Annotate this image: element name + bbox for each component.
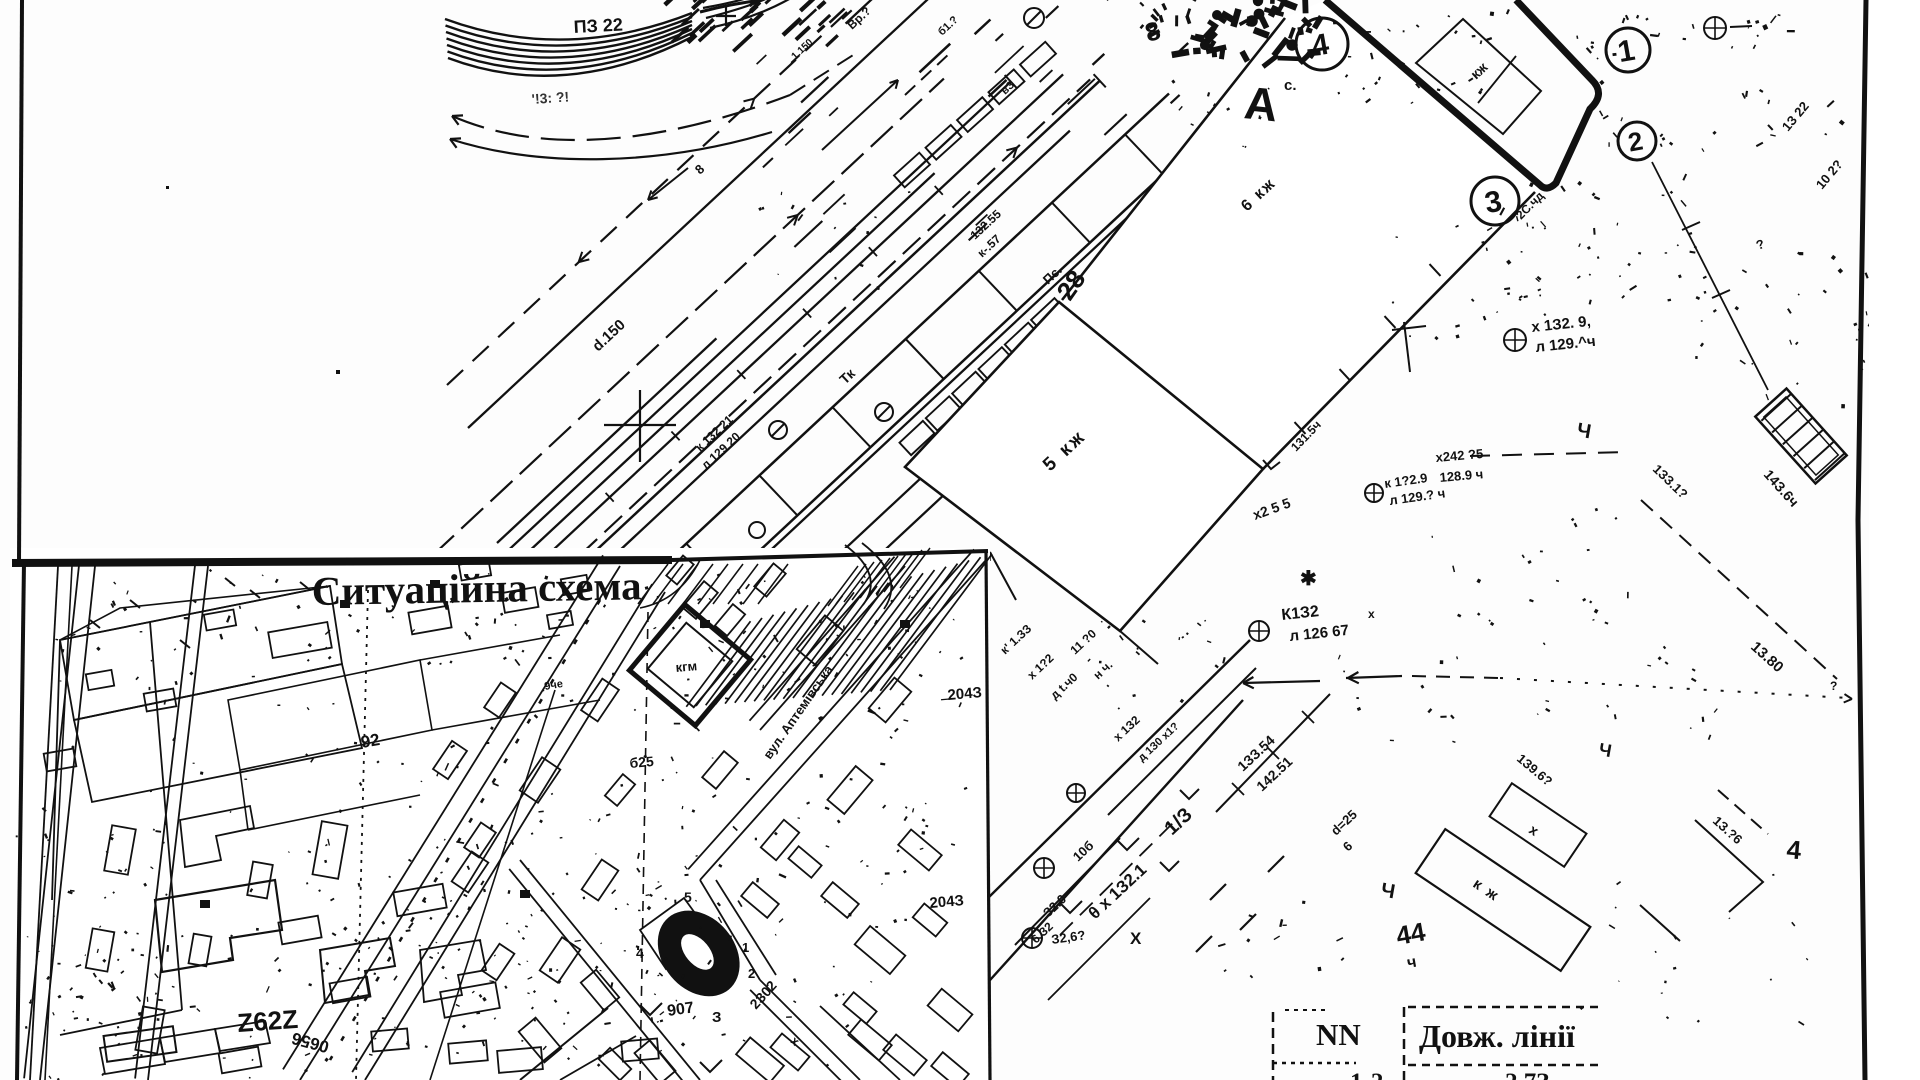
svg-text:1-2: 1-2 (1350, 1069, 1383, 1080)
svg-text:кгм: кгм (675, 658, 698, 675)
svg-text:б25: б25 (629, 753, 655, 771)
svg-text:Z62Z: Z62Z (236, 1004, 299, 1038)
svg-text:ПЗ 22: ПЗ 22 (573, 14, 623, 37)
svg-text:х: х (1368, 607, 1375, 621)
svg-text:А: А (1242, 76, 1280, 131)
svg-text:З: З (712, 1009, 721, 1026)
svg-text:?: ? (1830, 679, 1837, 693)
svg-text:Ситуаційна схема: Ситуаційна схема (311, 562, 642, 614)
svg-text:1: 1 (742, 940, 749, 955)
svg-text:2.7З: 2.7З (1505, 1069, 1549, 1080)
svg-text:'!3: ?!: '!3: ?! (531, 88, 570, 107)
svg-text:44: 44 (1394, 916, 1428, 951)
svg-text:с.: с. (1284, 77, 1297, 94)
svg-text:204З: 204З (929, 892, 965, 912)
svg-text:204З: 204З (947, 684, 983, 704)
svg-text:✱: ✱ (1300, 568, 1317, 590)
svg-text:Довж. лінії: Довж. лінії (1419, 1018, 1576, 1054)
svg-text:NN: NN (1316, 1017, 1361, 1052)
svg-text:92: 92 (359, 730, 381, 752)
svg-text:Х: Х (1130, 929, 1142, 948)
svg-text:5: 5 (684, 889, 692, 905)
svg-text:2: 2 (748, 966, 755, 981)
